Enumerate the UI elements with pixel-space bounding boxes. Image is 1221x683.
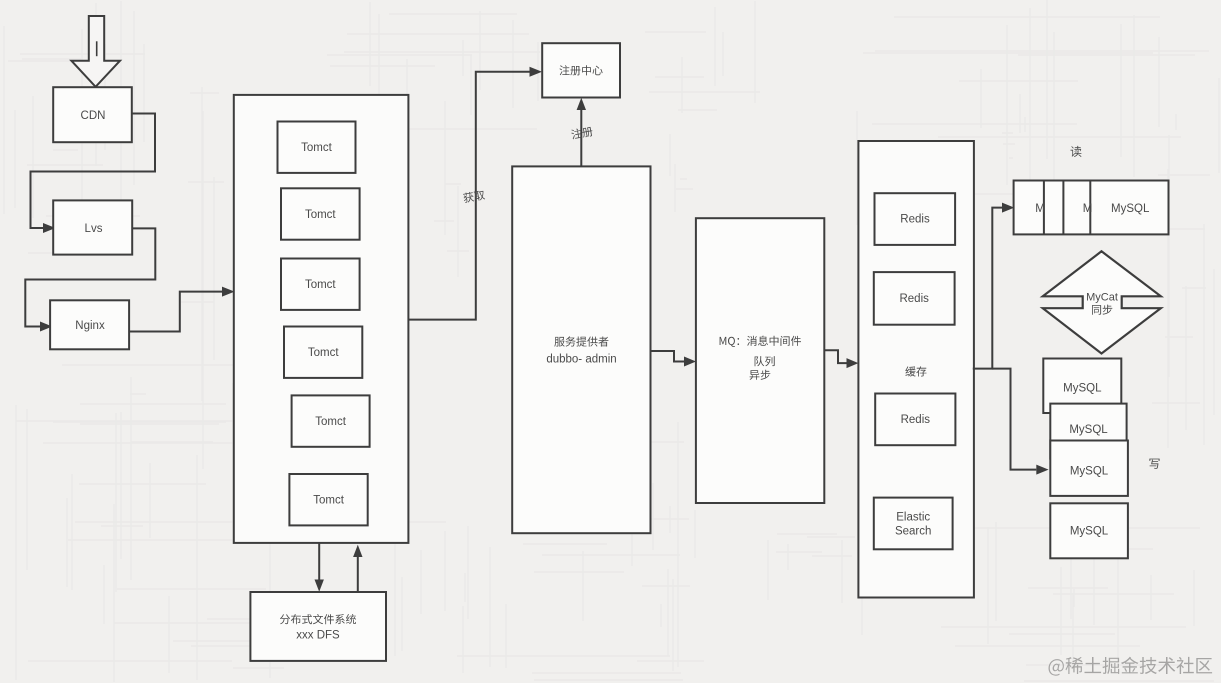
svg-text:Redis: Redis [900,214,930,226]
svg-text:M: M [1083,203,1093,215]
svg-text:Lvs: Lvs [85,223,103,235]
svg-text:Redis: Redis [901,414,931,426]
svg-text:CDN: CDN [81,110,106,122]
svg-text:Tomct: Tomct [305,279,336,291]
svg-text:Nginx: Nginx [75,320,105,332]
svg-text:Search: Search [895,526,931,538]
svg-text:Redis: Redis [899,293,929,305]
svg-text:M: M [1035,203,1045,215]
svg-text:MySQL: MySQL [1070,526,1109,538]
svg-text:xxx DFS: xxx DFS [296,630,340,642]
svg-text:MySQL: MySQL [1070,465,1109,477]
svg-text:Tomct: Tomct [305,209,336,221]
svg-text:MySQL: MySQL [1111,203,1150,215]
svg-text:MySQL: MySQL [1069,424,1108,436]
svg-text:dubbo- admin: dubbo- admin [546,354,616,366]
svg-text:Tomct: Tomct [308,347,339,359]
svg-text:Tomct: Tomct [315,416,346,428]
svg-text:MyCat: MyCat [1086,292,1118,304]
svg-text:Tomct: Tomct [301,142,332,154]
svg-text:MySQL: MySQL [1063,383,1102,395]
svg-text:Elastic: Elastic [896,512,930,524]
svg-text:Tomct: Tomct [313,495,344,507]
